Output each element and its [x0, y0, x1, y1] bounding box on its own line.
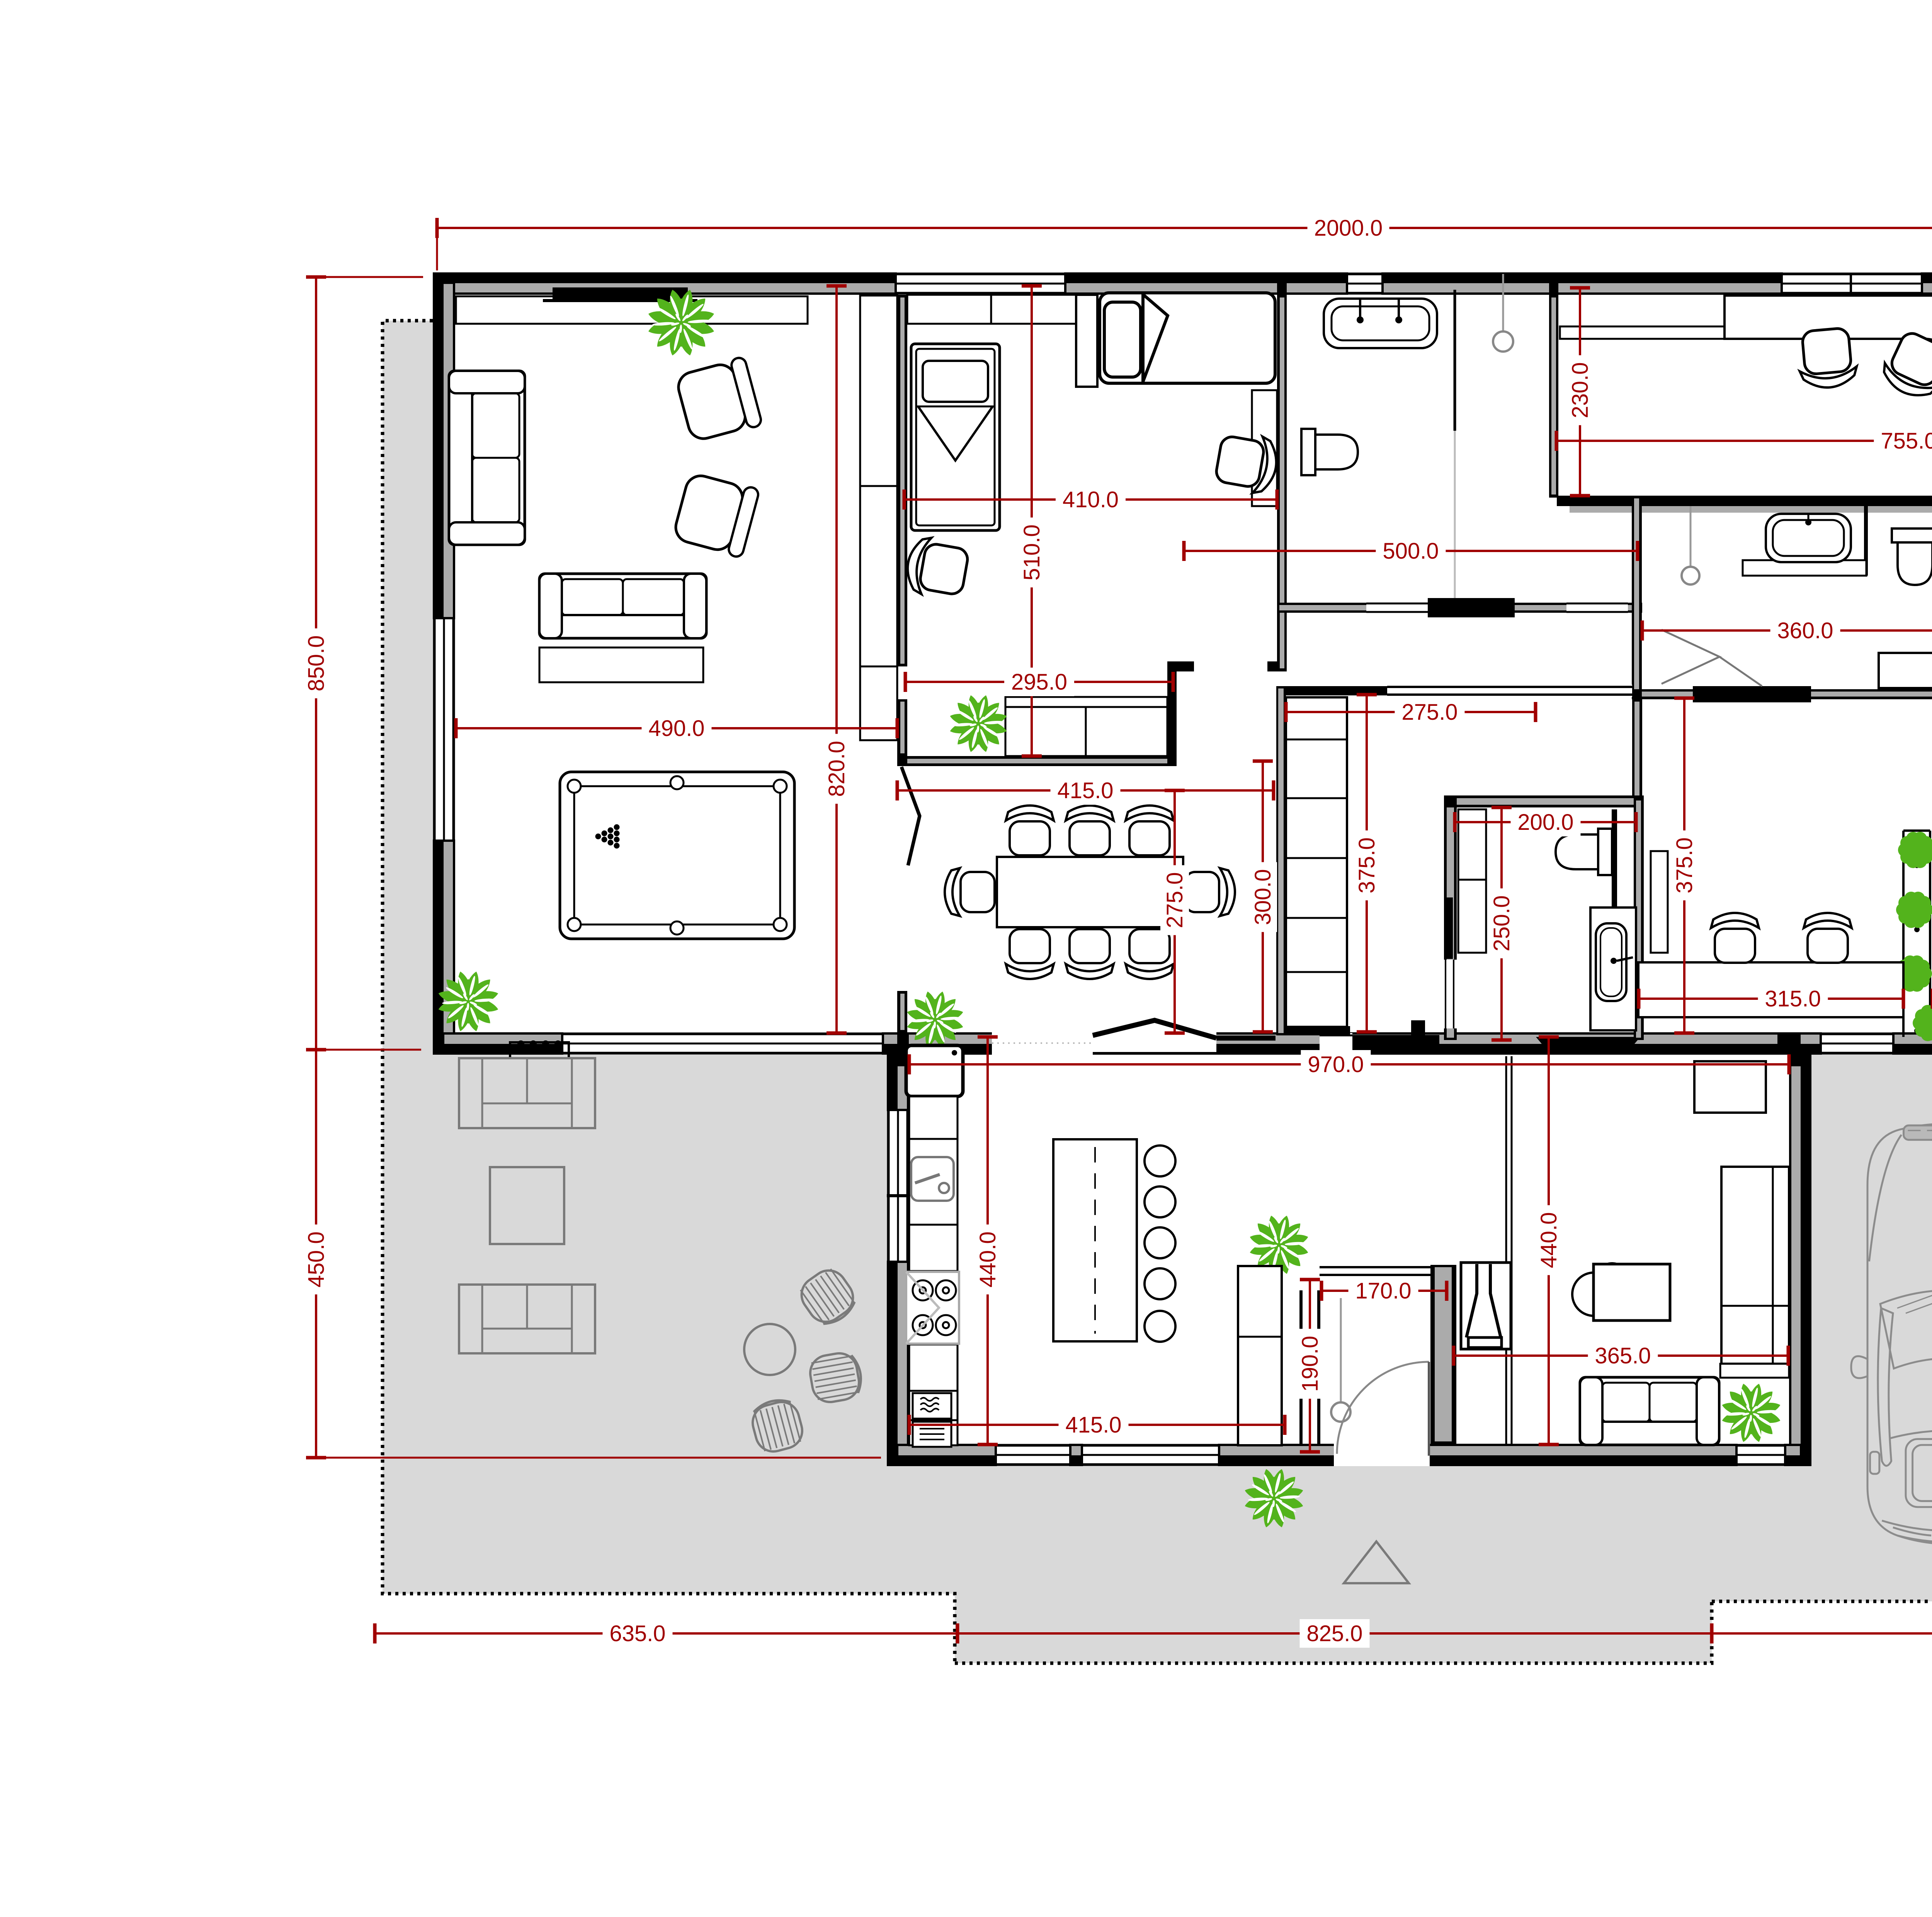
- svg-text:825.0: 825.0: [1306, 1621, 1362, 1646]
- svg-text:755.0: 755.0: [1881, 428, 1932, 454]
- svg-text:635.0: 635.0: [609, 1621, 665, 1646]
- svg-text:415.0: 415.0: [1065, 1412, 1121, 1438]
- svg-text:820.0: 820.0: [824, 741, 849, 797]
- svg-text:200.0: 200.0: [1517, 810, 1573, 835]
- svg-text:2000.0: 2000.0: [1314, 216, 1383, 241]
- svg-text:850.0: 850.0: [304, 635, 329, 691]
- svg-text:170.0: 170.0: [1355, 1278, 1411, 1303]
- svg-text:190.0: 190.0: [1298, 1336, 1323, 1392]
- svg-text:490.0: 490.0: [648, 716, 704, 741]
- svg-text:360.0: 360.0: [1777, 618, 1833, 643]
- svg-text:275.0: 275.0: [1162, 872, 1187, 928]
- svg-text:970.0: 970.0: [1308, 1052, 1364, 1077]
- svg-text:410.0: 410.0: [1063, 487, 1119, 512]
- svg-text:415.0: 415.0: [1057, 778, 1113, 803]
- svg-text:500.0: 500.0: [1383, 539, 1439, 564]
- svg-text:375.0: 375.0: [1672, 837, 1697, 893]
- svg-text:365.0: 365.0: [1595, 1343, 1651, 1368]
- svg-text:440.0: 440.0: [1536, 1212, 1561, 1268]
- svg-text:275.0: 275.0: [1401, 700, 1458, 725]
- svg-text:440.0: 440.0: [975, 1231, 1000, 1287]
- svg-text:510.0: 510.0: [1019, 524, 1044, 580]
- svg-text:230.0: 230.0: [1568, 362, 1593, 418]
- svg-text:300.0: 300.0: [1250, 869, 1276, 925]
- svg-text:450.0: 450.0: [304, 1231, 329, 1287]
- svg-text:315.0: 315.0: [1765, 986, 1821, 1011]
- svg-text:375.0: 375.0: [1354, 837, 1379, 893]
- svg-text:295.0: 295.0: [1011, 670, 1067, 695]
- svg-text:250.0: 250.0: [1489, 895, 1514, 951]
